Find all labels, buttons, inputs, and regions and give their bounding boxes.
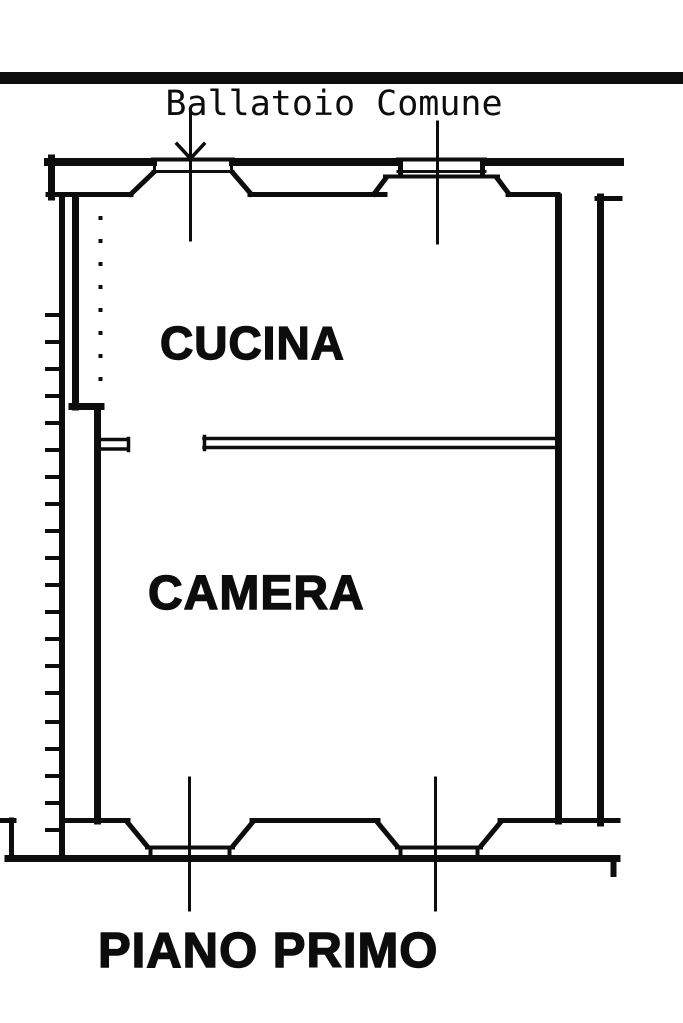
bottom-wall-left-end <box>0 820 14 858</box>
entrance-door-frame <box>153 162 233 172</box>
room-label-camera: CAMERA <box>148 566 365 621</box>
floorplan-page: Ballatoio Comune CUCINA CAMERA PIANO PRI… <box>0 0 683 1023</box>
balcony-label: Ballatoio Comune <box>158 84 510 124</box>
partition-wall <box>204 437 560 450</box>
bottom-window-2-reveals <box>378 823 500 846</box>
floorplan-drawing <box>0 0 683 1023</box>
top-border-bar <box>0 72 683 84</box>
right-double-wall <box>559 197 601 823</box>
opening-centerlines <box>190 112 438 910</box>
left-room-wall <box>72 197 101 821</box>
room-label-cucina: CUCINA <box>160 316 345 370</box>
floor-title: PIANO PRIMO <box>98 923 438 979</box>
top-window-reveals <box>374 178 509 194</box>
top-wall-inner-faces <box>48 195 620 199</box>
